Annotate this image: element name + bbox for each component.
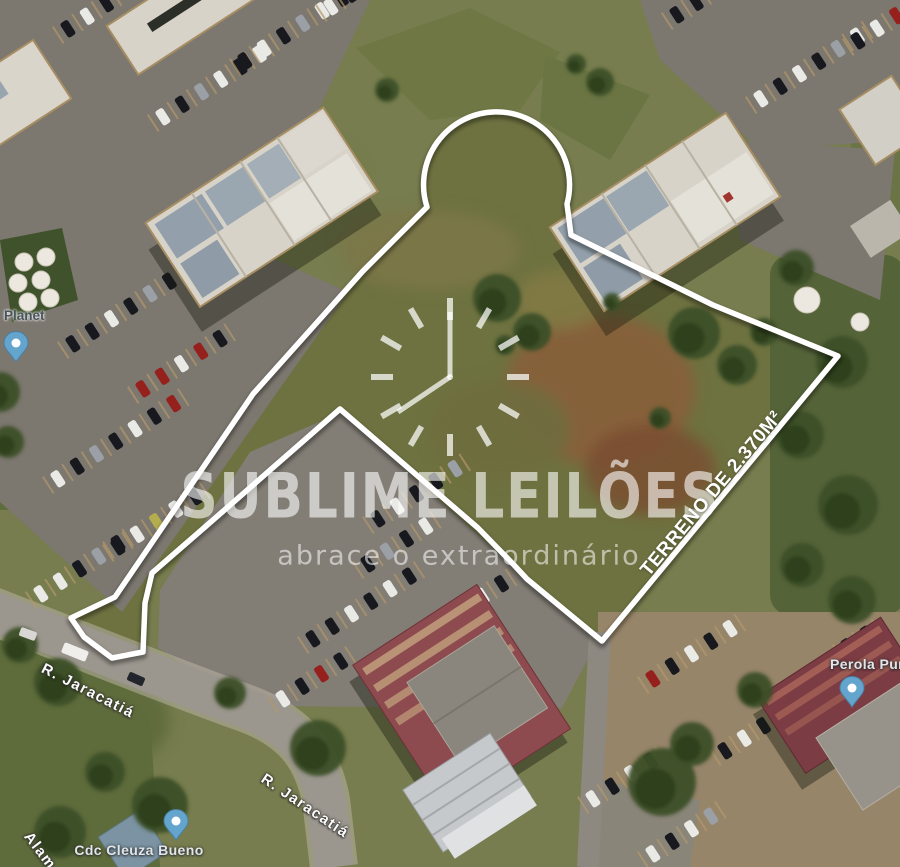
tree-shadow xyxy=(568,60,580,72)
tree-shadow xyxy=(824,493,860,529)
tree-shadow xyxy=(741,683,763,705)
tree-shadow xyxy=(589,76,606,93)
clock-center xyxy=(447,374,453,380)
tree-shadow xyxy=(217,687,236,706)
map-pin-perola[interactable] xyxy=(839,676,865,710)
tree-shadow xyxy=(635,768,676,809)
tree-shadow xyxy=(782,261,804,283)
tree-shadow xyxy=(673,323,704,354)
map-pin-cdc-cleuza-bueno[interactable] xyxy=(163,809,189,843)
tree-shadow xyxy=(651,414,664,427)
tree-shadow xyxy=(605,298,616,309)
tree-shadow xyxy=(296,737,330,771)
tree-shadow xyxy=(377,85,391,99)
tree-shadow xyxy=(89,764,113,788)
watermark-tagline-text: abrace o extraordinário xyxy=(277,541,640,572)
tree-shadow xyxy=(784,556,810,582)
poi-label-cdc-cleuza-bueno[interactable]: Cdc Cleuza Bueno xyxy=(74,842,203,858)
watermark-brand-text: SUBLIME LEILÕES xyxy=(180,460,720,533)
satellite-map-view: SUBLIME LEILÕES abrace o extraordinário … xyxy=(0,0,900,867)
tree-shadow xyxy=(478,288,507,317)
map-pin-planet[interactable] xyxy=(3,331,29,365)
tree-shadow xyxy=(781,425,810,454)
poi-label-perola[interactable]: Perola Pur xyxy=(830,656,900,672)
tree-shadow xyxy=(674,735,700,761)
tree-shadow xyxy=(833,590,862,619)
tree-shadow xyxy=(721,357,745,381)
tree-shadow xyxy=(6,638,28,660)
tree-shadow xyxy=(517,324,540,347)
poi-label-planet[interactable]: Planet xyxy=(4,308,45,323)
